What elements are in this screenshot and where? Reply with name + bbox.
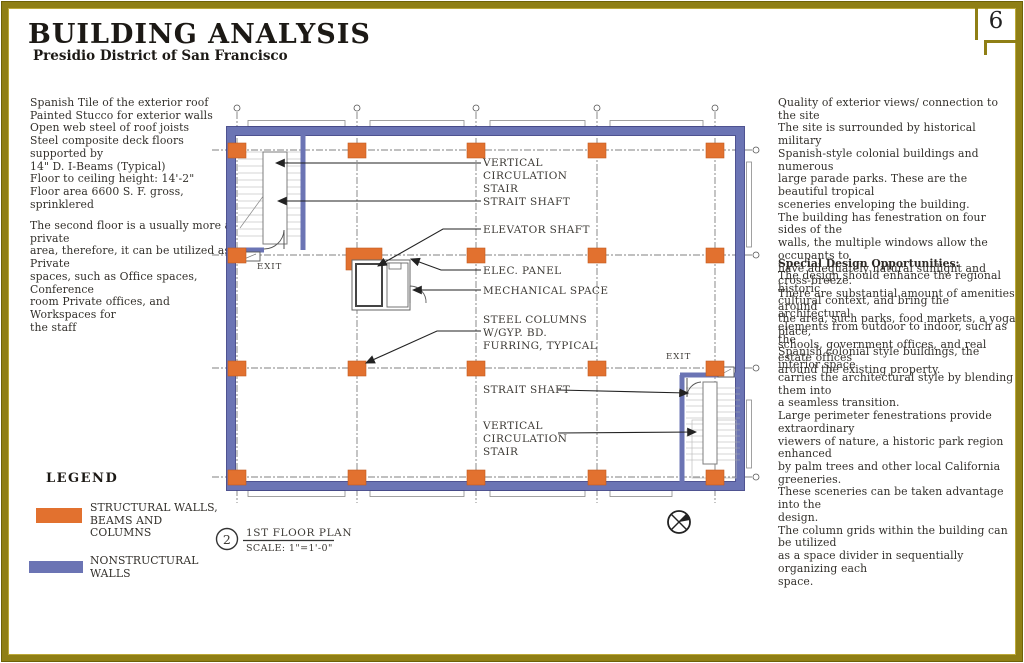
- label-vertical-circulation-stair-2-line1: VERTICAL: [482, 420, 543, 432]
- grid-lines: [212, 112, 752, 503]
- drawing-callout: 2 1ST FLOOR PLAN SCALE: 1"=1'-0": [217, 527, 353, 554]
- floor-plan-drawing: VERTICAL CIRCULATION STAIR STRAIT SHAFT …: [0, 0, 1024, 663]
- label-strait-shaft-1: STRAIT SHAFT: [483, 196, 570, 208]
- label-steel-columns-line2: W/GYP. BD.: [483, 327, 547, 339]
- label-vertical-circulation-stair-1-line1: VERTICAL: [482, 157, 543, 169]
- label-steel-columns-line3: FURRING, TYPICAL: [483, 340, 597, 352]
- label-strait-shaft-2: STRAIT SHAFT: [483, 384, 570, 396]
- label-steel-columns-line1: STEEL COLUMNS: [483, 314, 587, 326]
- label-vertical-circulation-stair-1-line2: CIRCULATION: [483, 170, 567, 182]
- sheet: 6 BUILDING ANALYSIS Presidio District of…: [0, 0, 1024, 663]
- label-exit-northwest: EXIT: [257, 262, 282, 272]
- label-vertical-circulation-stair-2-line2: CIRCULATION: [483, 433, 567, 445]
- label-mechanical-space: MECHANICAL SPACE: [483, 285, 608, 297]
- callout-number: 2: [223, 532, 231, 547]
- elevator-mechanical-block: [346, 248, 426, 310]
- label-vertical-circulation-stair-2-line3: STAIR: [483, 446, 519, 458]
- stair-room-southeast: [680, 367, 744, 487]
- north-arrow-icon: [668, 511, 690, 533]
- label-elevator-shaft: ELEVATOR SHAFT: [483, 224, 590, 236]
- callout-title: 1ST FLOOR PLAN: [246, 527, 352, 539]
- label-elec-panel: ELEC. PANEL: [483, 265, 562, 277]
- callout-scale: SCALE: 1"=1'-0": [246, 543, 333, 554]
- label-vertical-circulation-stair-1-line3: STAIR: [483, 183, 519, 195]
- label-exit-southeast: EXIT: [666, 352, 691, 362]
